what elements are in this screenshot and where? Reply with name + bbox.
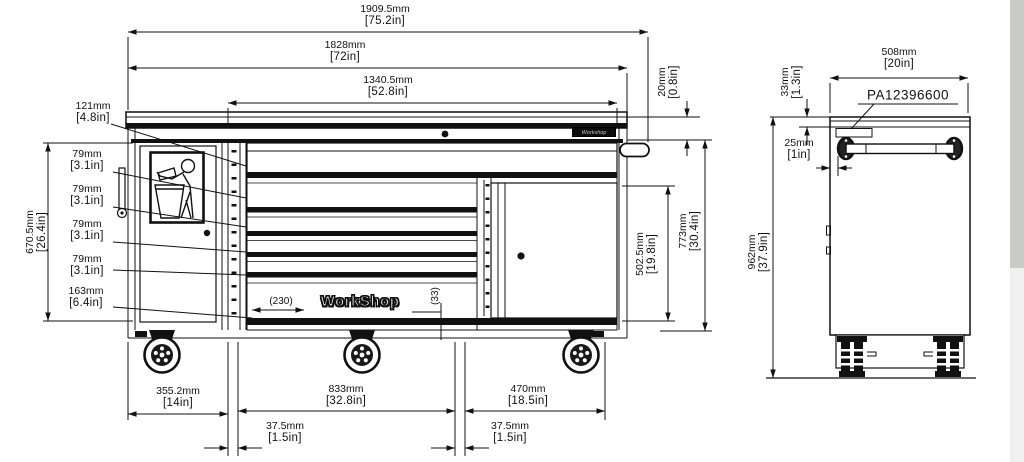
right-door [491,183,617,318]
dim-top-rail-height: 33mm[1.3in] [779,65,803,98]
dim-drawer5-height: 79mm[3.1in] [70,253,103,277]
dim-body-height: 773mm[30.4in] [677,211,701,251]
top-drawer [247,143,617,178]
front-caster-left [145,330,180,373]
left-door-knob [204,230,210,236]
door-lock-rod-icon [118,168,127,218]
dispose-properly-icon [151,153,204,223]
dim-drawer-stack-height: 670.5mm[26.4in] [24,210,48,254]
top-lock-icon [442,131,449,138]
dim-depth: 508mm[20in] [881,46,916,70]
part-number-plate [836,129,872,138]
dim-left-divider-width: 37.5mm[1.5in] [266,420,304,444]
dim-door-opening-height: 502.5mm[19.8in] [634,232,658,276]
dim-overall-width: 1909.5mm[75.2in] [360,3,410,27]
brand-label: Workshop [572,127,616,137]
right-door-knob [517,252,524,259]
dim-bottom-drawer-height: 163mm[6.4in] [68,285,103,309]
workshop-logo: WorkShop [321,293,400,310]
blueprint-canvas: 1909.5mm[75.2in] 1828mm[72in] 1340.5mm[5… [0,0,1024,462]
dim-top-drawer-height: 121mm[4.8in] [75,100,110,124]
logo-height-ref: (33) [430,287,442,305]
dim-drawer2-height: 79mm[3.1in] [70,148,103,172]
dim-right-section-width: 470mm[18.5in] [508,383,548,407]
dim-body-width: 1828mm[72in] [325,39,366,63]
dim-right-divider-width: 37.5mm[1.5in] [491,420,529,444]
dim-top-drawer-width: 1340.5mm[52.8in] [363,74,413,98]
dim-overall-height: 962mm[37.9in] [746,232,770,272]
dim-left-section-width: 355.2mm[14in] [156,385,200,409]
logo-width-ref: (230) [269,296,292,308]
side-handle-icon [620,144,649,157]
dim-label-inset: 25mm[1in] [784,137,813,161]
dim-drawer3-height: 79mm[3.1in] [70,183,103,207]
front-base [128,331,627,338]
part-number: PA12396600 [867,88,949,103]
dim-worktop-overhang: 20mm[0.8in] [656,65,680,98]
front-caster-middle [345,330,380,373]
dim-drawer4-height: 79mm[3.1in] [70,218,103,242]
dim-center-section-width: 833mm[32.8in] [326,383,366,407]
